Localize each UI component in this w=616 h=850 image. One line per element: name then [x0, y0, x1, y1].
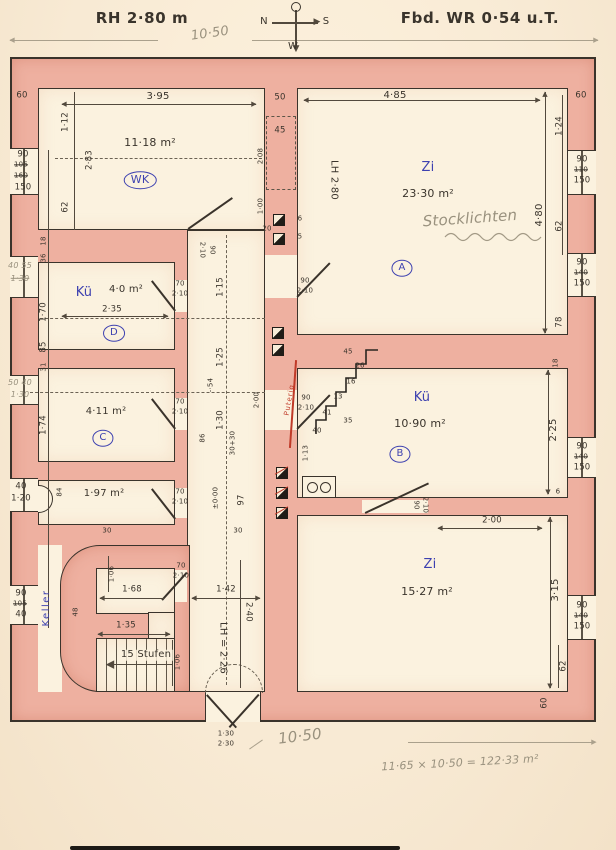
dimline-wk-left: [74, 92, 75, 230]
overall-width-pencil-top: 10·50: [190, 25, 230, 44]
door-zi-b-h: 2·10: [421, 497, 428, 513]
dim-zi-width: 4·85: [383, 91, 406, 102]
door-zi-a-h: 2·10: [297, 287, 313, 294]
dim-l-31: 31: [40, 362, 47, 371]
dim-s-106a: 1·06: [108, 566, 115, 582]
dim-r-60b: 60: [541, 697, 550, 708]
dim-r-60: 60: [575, 92, 586, 101]
compass-bottom: W: [288, 42, 298, 53]
dim-c-3030: 30+30: [229, 431, 236, 456]
dimline-135: [98, 634, 170, 635]
dimline-142: [192, 598, 260, 599]
wavy-underline: [445, 232, 541, 242]
win-l1-w: 90: [17, 151, 28, 160]
dim-mid-20: 20: [262, 225, 271, 232]
dim-r-62b: 62: [560, 660, 569, 671]
door-stair-w: 70: [176, 562, 185, 569]
win-l4-h: 1·20: [11, 495, 31, 504]
kue-d-area: 4·0 m²: [109, 285, 143, 296]
dim-c-30b: 30: [233, 527, 242, 534]
stair-connector: [148, 612, 175, 640]
dim-l-84: 84: [56, 487, 63, 496]
dim-l-85: 85: [40, 341, 49, 352]
dim-r-225: 2·25: [549, 418, 560, 441]
door-gap-zi-a: [265, 255, 297, 298]
room-zi-b: [297, 515, 568, 692]
win-l3-pencil-b: 1·30: [11, 391, 30, 399]
dim-r-78: 78: [556, 316, 565, 327]
dimline-zi-b-height: [550, 517, 551, 688]
door-c-w: 70: [175, 398, 184, 405]
door-c-h: 2·10: [172, 408, 188, 415]
entrance-door-h: 2·30: [218, 740, 234, 747]
entrance-gap: [205, 692, 261, 722]
dim-s-106b: 1·06: [174, 654, 181, 670]
wk-name-circled: WK: [124, 171, 157, 189]
dim-c-130: 1·30: [217, 410, 226, 430]
dim-r-315: 3·15: [551, 578, 562, 601]
dim-c-115: 1·15: [217, 277, 226, 297]
pencil-arrow-right: [252, 40, 598, 41]
flue-square: [273, 214, 285, 226]
dim-c-97: 97: [238, 494, 247, 505]
dim-l-170: 1·70: [40, 302, 49, 322]
flue-square: [272, 327, 284, 339]
axis-corridor: [226, 235, 227, 685]
pencil-arrow-bottom: [408, 742, 594, 743]
zi-a-area: 23·30 m²: [402, 188, 454, 200]
stair-clear-height: LH = 2·26: [217, 622, 228, 674]
zig-16: 16: [346, 378, 355, 385]
overall-width-pencil-bottom: 10·50: [277, 727, 323, 748]
zi-a-name: Zi: [422, 161, 435, 175]
door-kue-b-h: 2·10: [298, 404, 314, 411]
door-d-w: 70: [175, 280, 184, 287]
dim-c-86: 86: [199, 433, 206, 442]
dim-r-18: 18: [552, 358, 559, 367]
zi-a-clear-height: LH 2·80: [328, 160, 339, 200]
dim-c-200: 2·00: [253, 392, 260, 408]
dim-r-6: 6: [556, 488, 561, 495]
room-height-note: RH 2·80 m: [96, 11, 189, 27]
win-r2-old: 140: [574, 269, 588, 276]
zig-13: 13: [333, 393, 342, 400]
area-calculation: 11·65 × 10·50 = 122·33 m²: [381, 753, 539, 773]
floor-plan-sheet: RH 2·80 m Fbd. WR 0·54 u.T. 10·50 ◀ ▶ ▼ …: [0, 0, 616, 850]
entrance-door-w: 1·30: [218, 730, 234, 737]
floor-level-note: Fbd. WR 0·54 u.T.: [401, 11, 559, 27]
zig-35: 35: [343, 417, 352, 424]
win-r3-old: 140: [574, 453, 588, 460]
dimline-left-chain: [48, 150, 49, 628]
door-zi-a-w: 90: [300, 277, 309, 284]
sink-symbol: [302, 476, 336, 498]
dim-mid-6: 6: [298, 215, 303, 222]
win-r3-w: 90: [576, 443, 587, 452]
dimline-168: [100, 598, 164, 599]
zig-40: 40: [312, 427, 321, 434]
win-l3-pencil-a: 50 40: [8, 379, 32, 387]
dim-l-36: 36: [40, 253, 47, 262]
dimline-235: [62, 316, 168, 317]
kue-b-area: 10·90 m²: [394, 418, 446, 430]
dim-top-wall: 60: [16, 92, 27, 101]
win-l2-pencil-b: 1·30: [11, 275, 30, 283]
kue-b-letter: B: [389, 446, 410, 463]
door-d-h: 2·10: [172, 290, 188, 297]
win-l5-w: 90: [15, 590, 26, 599]
compass-right: S: [323, 17, 330, 28]
dim-mid-208: 2·08: [257, 148, 264, 164]
dim-mid-45: 45: [274, 127, 285, 136]
dim-wk-283: 2·83: [86, 150, 95, 170]
dim-l-174: 1·74: [40, 415, 49, 435]
dim-c-142: 1·42: [216, 586, 236, 595]
win-r1-w: 90: [576, 156, 587, 165]
dim-s-135: 1·35: [116, 622, 136, 631]
door-small-w: 70: [175, 488, 184, 495]
axis-kue-d: [40, 318, 265, 319]
dim-c-30a: 30: [102, 527, 111, 534]
stufen-label: 15 Stufen: [119, 650, 173, 661]
win-r4-cur: 150: [574, 623, 591, 632]
zig-41: 41: [322, 409, 331, 416]
flue-square: [273, 233, 285, 245]
dimline-240: [240, 560, 241, 688]
win-r2-cur: 150: [574, 280, 591, 289]
door-zi-b-w: 90: [412, 500, 419, 509]
zi-b-area: 15·27 m²: [401, 586, 453, 598]
dim-l-18: 18: [40, 236, 47, 245]
level-minus54: -·54: [207, 378, 214, 392]
zi-a-letter: A: [391, 260, 412, 277]
axis-c: [30, 392, 265, 393]
door-top-h: 2·10: [198, 242, 205, 258]
c-area: 4·11 m²: [86, 407, 127, 418]
dim-mid-50: 50: [274, 94, 285, 103]
dimline-wk-width: [62, 104, 256, 105]
kue-b-name: Kü: [414, 391, 431, 405]
zig-45: 45: [343, 348, 352, 355]
door-kue-b-w: 90: [301, 394, 310, 401]
win-l4-w: 40: [15, 483, 26, 492]
scan-edge-artifact: [70, 846, 400, 850]
dim-mid-100: 1·00: [257, 198, 264, 214]
c-letter: C: [92, 430, 113, 447]
win-r1-old: 110: [574, 166, 588, 173]
dim-zi-height: 4·80: [535, 203, 546, 226]
flue-square: [272, 344, 284, 356]
dim-zb-200: 2·00: [482, 517, 502, 526]
kue-d-name: Kü: [76, 286, 93, 300]
win-r4-old: 140: [574, 612, 588, 619]
keller-note: Keller: [42, 589, 53, 626]
win-l1-cur: 150: [15, 184, 32, 193]
dim-wk-width: 3·95: [146, 92, 169, 103]
dim-c-125: 1·25: [217, 347, 226, 367]
stufen-arrow-line: [112, 664, 172, 665]
kue-d-letter: D: [103, 325, 125, 342]
dim-s-168: 1·68: [122, 586, 142, 595]
level-zero: ±0·00: [212, 487, 219, 509]
dimline-zi-width: [304, 100, 540, 101]
win-r3-cur: 150: [574, 464, 591, 473]
dim-k-113: 1·13: [302, 445, 309, 461]
win-r4-w: 90: [576, 602, 587, 611]
dim-r-62: 62: [556, 220, 565, 231]
wk-area: 11·18 m²: [124, 137, 176, 149]
kue-d-width: 2·35: [102, 306, 122, 315]
dim-s-48: 48: [72, 607, 79, 616]
compass-top: O: [292, 0, 300, 3]
pencil-arrow-left: [10, 40, 158, 41]
door-small-h: 2·10: [172, 498, 188, 505]
win-l5-cur: 40: [15, 611, 26, 620]
win-l2-pencil-a: 40 55: [8, 262, 32, 270]
dim-c-240: 2·40: [244, 602, 253, 622]
zi-b-name: Zi: [424, 558, 437, 572]
door-stair-h: 2·10: [173, 572, 189, 579]
zig-26: 26: [355, 362, 364, 369]
small-area: 1·97 m²: [84, 489, 125, 500]
win-l5-old: 105: [13, 600, 27, 607]
room-wk: [38, 88, 265, 230]
dim-wk-62: 62: [62, 201, 71, 212]
dim-wk-112: 1·12: [62, 112, 71, 132]
dimline-zb-200: [438, 528, 542, 529]
dim-mid-5: 5: [298, 233, 303, 240]
win-r1-cur: 150: [574, 177, 591, 186]
win-l1-old1: 105: [14, 161, 28, 168]
compass-left: N: [260, 17, 268, 28]
dim-r-124: 1·24: [556, 116, 565, 136]
pencil-tick: [249, 740, 263, 750]
door-top-w: 90: [208, 245, 215, 254]
win-r2-w: 90: [576, 259, 587, 268]
win-l1-old2: 160: [14, 172, 28, 179]
